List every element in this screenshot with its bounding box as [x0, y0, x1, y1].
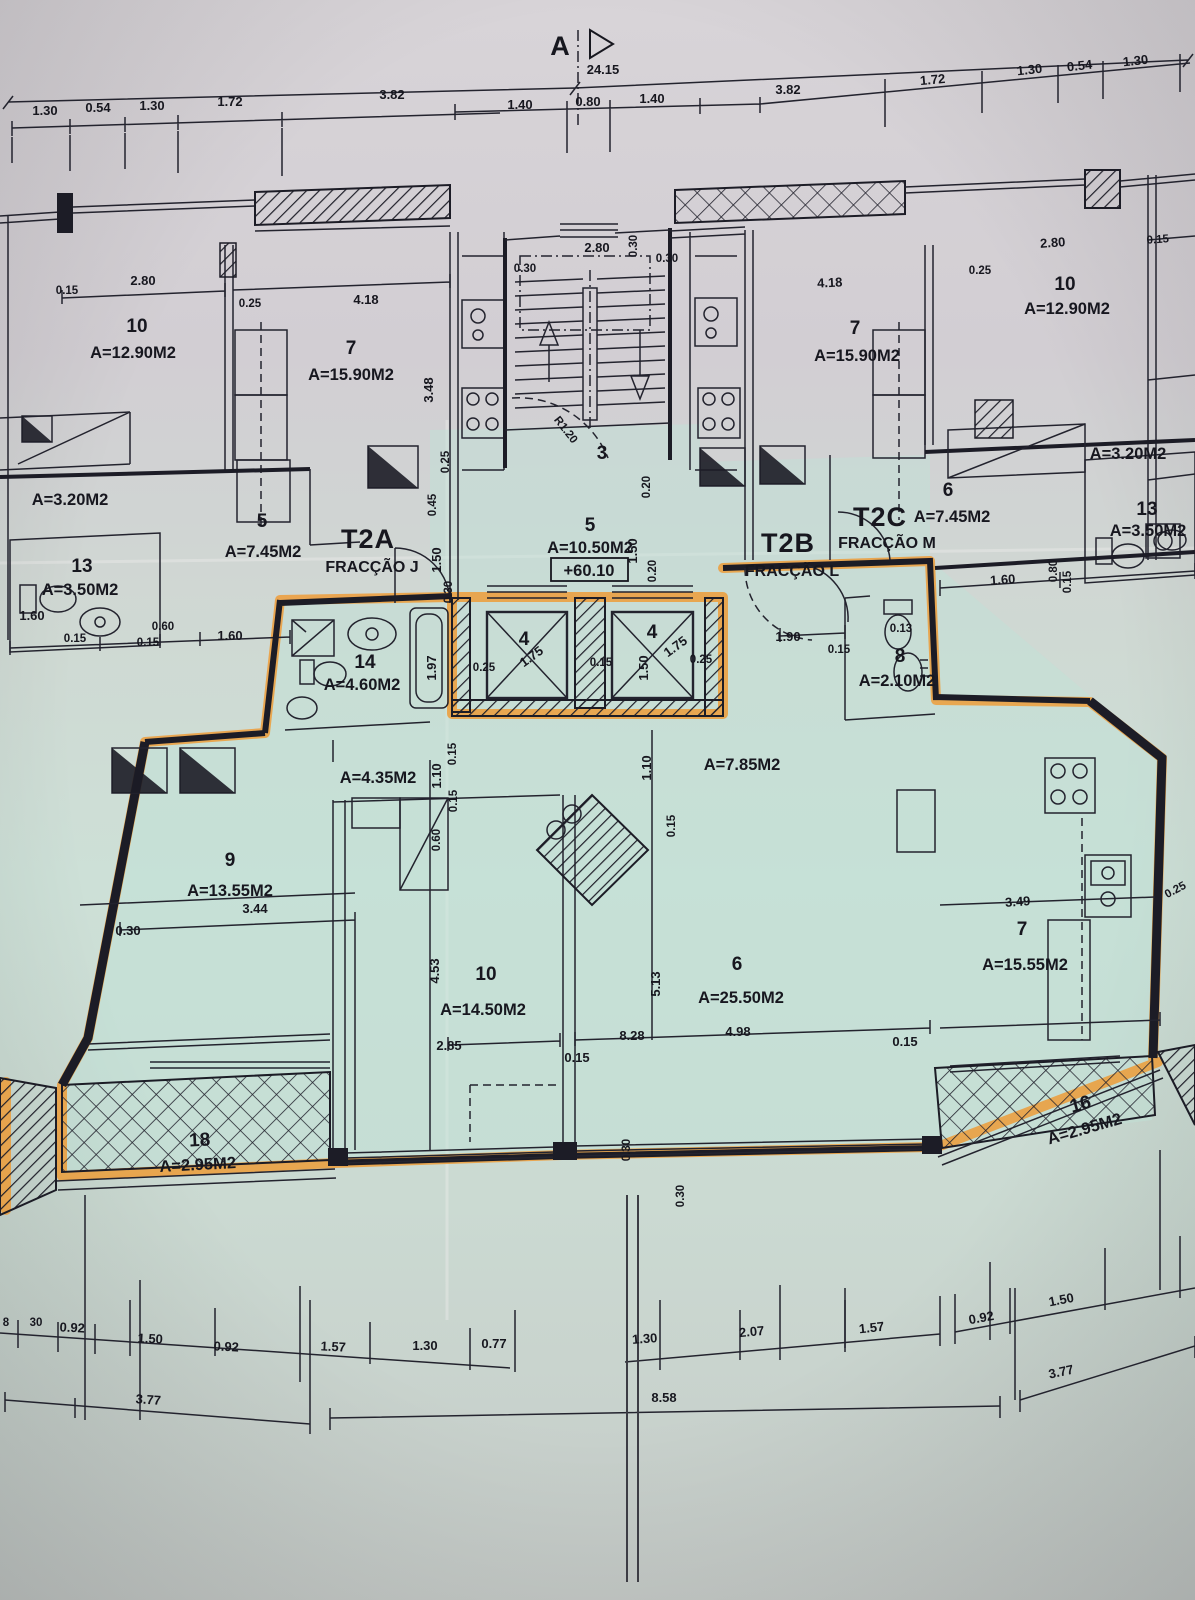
- dim: 1.50: [636, 655, 651, 680]
- room-area: A=15.90M2: [308, 366, 394, 384]
- dim: 0.25: [239, 298, 262, 310]
- room-area: A=3.20M2: [1090, 445, 1167, 463]
- room-area: A=15.55M2: [982, 956, 1068, 974]
- dim: 0.30: [443, 581, 455, 603]
- room-area: A=4.60M2: [324, 676, 401, 694]
- dim: 0.60: [431, 829, 443, 851]
- dim: 1.90: [775, 629, 800, 644]
- dim: 8: [3, 1317, 10, 1329]
- dim: 0.30: [656, 253, 678, 265]
- overall-dimension: 24.15: [587, 62, 620, 77]
- dim: 4.18: [353, 292, 378, 307]
- dim: 0.30: [621, 1139, 633, 1161]
- fraction-code: T2B: [761, 528, 815, 558]
- room-number: 7: [346, 338, 357, 359]
- dim: 1.60: [19, 608, 44, 623]
- dim: 1.30: [412, 1338, 437, 1353]
- room-area: A=3.20M2: [32, 491, 109, 509]
- dim: 1.30: [1016, 61, 1043, 79]
- dim: 0.77: [481, 1336, 506, 1351]
- dim: 8.28: [619, 1028, 644, 1043]
- dim: 0.25: [969, 265, 992, 277]
- dim: 3.49: [1005, 893, 1031, 910]
- dim: 0.15: [1146, 233, 1170, 247]
- dim: 0.54: [1066, 57, 1093, 75]
- dim: 1.10: [639, 755, 654, 780]
- dim: 2.80: [584, 240, 609, 255]
- floor-plan-drawing: A 24.15 0.54 1.30 0.54 1.30 1.72 3.82 1.…: [0, 0, 1195, 1600]
- dim: 1.50: [429, 547, 444, 572]
- room-number: 10: [126, 316, 147, 337]
- dim: 3.44: [242, 901, 268, 916]
- room-area: A=7.45M2: [225, 543, 302, 561]
- room-area: A=2.10M2: [859, 672, 936, 690]
- room-area: A=15.90M2: [814, 347, 900, 365]
- fraction-name: FRACÇÃO L: [745, 560, 839, 580]
- room-number: 10: [1054, 274, 1075, 295]
- room-number: 8: [895, 646, 906, 667]
- dim: 1.72: [919, 71, 946, 88]
- room-number: 14: [354, 652, 376, 673]
- dim: 1.60: [990, 571, 1016, 588]
- dim: 0.25: [690, 654, 713, 666]
- room-number: 7: [1017, 919, 1028, 940]
- dim: 0.20: [647, 560, 659, 582]
- dim: 8.58: [651, 1390, 676, 1405]
- dim: 0.60: [152, 621, 174, 633]
- floor-plan-photo: A 24.15 0.54 1.30 0.54 1.30 1.72 3.82 1.…: [0, 0, 1195, 1600]
- dim: 0.30: [115, 923, 140, 938]
- dim: 1.72: [217, 94, 242, 109]
- level-value: +60.10: [564, 562, 615, 580]
- dim: 1.50: [625, 538, 640, 563]
- dim: 0.13: [890, 623, 912, 635]
- dim: 0.15: [892, 1034, 917, 1049]
- dim: 0.15: [666, 814, 678, 837]
- dim: 0.15: [564, 1050, 589, 1065]
- room-number: 18: [189, 1129, 211, 1151]
- room-number: 6: [943, 480, 954, 501]
- dim: 1.30: [139, 98, 164, 113]
- dim: 2.80: [1040, 234, 1066, 251]
- elevator-number: 4: [647, 622, 658, 643]
- dim: 1.30: [1122, 52, 1149, 70]
- dim: 4.53: [427, 958, 442, 983]
- room-number: 3: [597, 443, 608, 464]
- room-number: 13: [71, 556, 92, 577]
- room-number: 5: [585, 515, 596, 536]
- dim: 0.54: [85, 100, 111, 115]
- room-number: 5: [257, 511, 268, 532]
- fraction-name: FRACÇÃO J: [325, 556, 418, 576]
- dim: 0.92: [213, 1338, 239, 1354]
- room-number: 10: [475, 964, 496, 985]
- dim: 1.57: [858, 1319, 885, 1337]
- room-area: A=3.50M2: [1110, 522, 1187, 540]
- dim: 4.18: [817, 274, 843, 290]
- dim: 3.48: [421, 377, 436, 402]
- dim: 0.30: [628, 235, 640, 257]
- dim: 1.60: [217, 628, 242, 643]
- room-area: A=4.35M2: [340, 769, 417, 787]
- room-area: A=7.85M2: [704, 756, 781, 774]
- room-area: A=14.50M2: [440, 1001, 526, 1019]
- dim: 0.45: [427, 493, 439, 516]
- fraction-name: FRACÇÃO M: [838, 532, 936, 552]
- dim: 0.30: [675, 1185, 687, 1207]
- dim: 0.15: [448, 789, 460, 812]
- dim: 2.07: [738, 1323, 765, 1340]
- dim: 2.85: [436, 1038, 461, 1053]
- dim: 1.30: [32, 103, 57, 118]
- dim: 5.13: [648, 971, 663, 996]
- dim: 0.15: [828, 644, 851, 656]
- elevator-number: 4: [519, 629, 530, 650]
- dim: 0.92: [59, 1319, 85, 1335]
- dim: 30: [30, 1317, 43, 1329]
- dim: 2.80: [130, 273, 155, 288]
- dim: 1.10: [429, 763, 444, 788]
- room-number: 7: [850, 318, 861, 339]
- dim: 0.30: [514, 263, 536, 275]
- room-area: A=25.50M2: [698, 989, 784, 1007]
- fraction-code: T2C: [853, 502, 907, 532]
- room-area: A=13.55M2: [187, 882, 273, 900]
- dim: 0.80: [1048, 560, 1060, 582]
- room-number: 6: [732, 954, 743, 975]
- dim: 0.80: [575, 94, 600, 109]
- dim: 0.15: [590, 657, 613, 669]
- dim: 0.15: [447, 742, 459, 765]
- dim: 0.15: [56, 285, 79, 297]
- dim: 3.82: [775, 82, 800, 97]
- dim: 1.57: [320, 1338, 346, 1354]
- dim: 0.20: [641, 476, 653, 498]
- room-area: A=7.45M2: [914, 508, 991, 526]
- room-number: 9: [225, 850, 236, 871]
- dim: 0.25: [473, 662, 496, 674]
- section-marker-label: A: [550, 31, 570, 61]
- dim: 1.50: [137, 1330, 163, 1346]
- dim: 3.82: [379, 87, 404, 102]
- room-number: 13: [1136, 499, 1157, 520]
- room-area: A=12.90M2: [90, 344, 176, 362]
- dim: 1.40: [639, 91, 664, 106]
- dim: 0.15: [137, 637, 160, 649]
- dim: 1.30: [632, 1330, 658, 1347]
- room-area: A=10.50M2: [547, 539, 633, 557]
- dim: 4.98: [725, 1024, 750, 1039]
- fraction-code: T2A: [341, 524, 395, 554]
- room-area: A=3.50M2: [42, 581, 119, 599]
- dim: 0.15: [64, 633, 87, 645]
- dim: 0.15: [1062, 570, 1074, 593]
- dim: 1.97: [424, 655, 439, 680]
- room-area: A=12.90M2: [1024, 300, 1110, 318]
- dim: 3.77: [135, 1391, 161, 1408]
- dim: 0.25: [440, 450, 452, 473]
- dim: 1.40: [507, 97, 532, 112]
